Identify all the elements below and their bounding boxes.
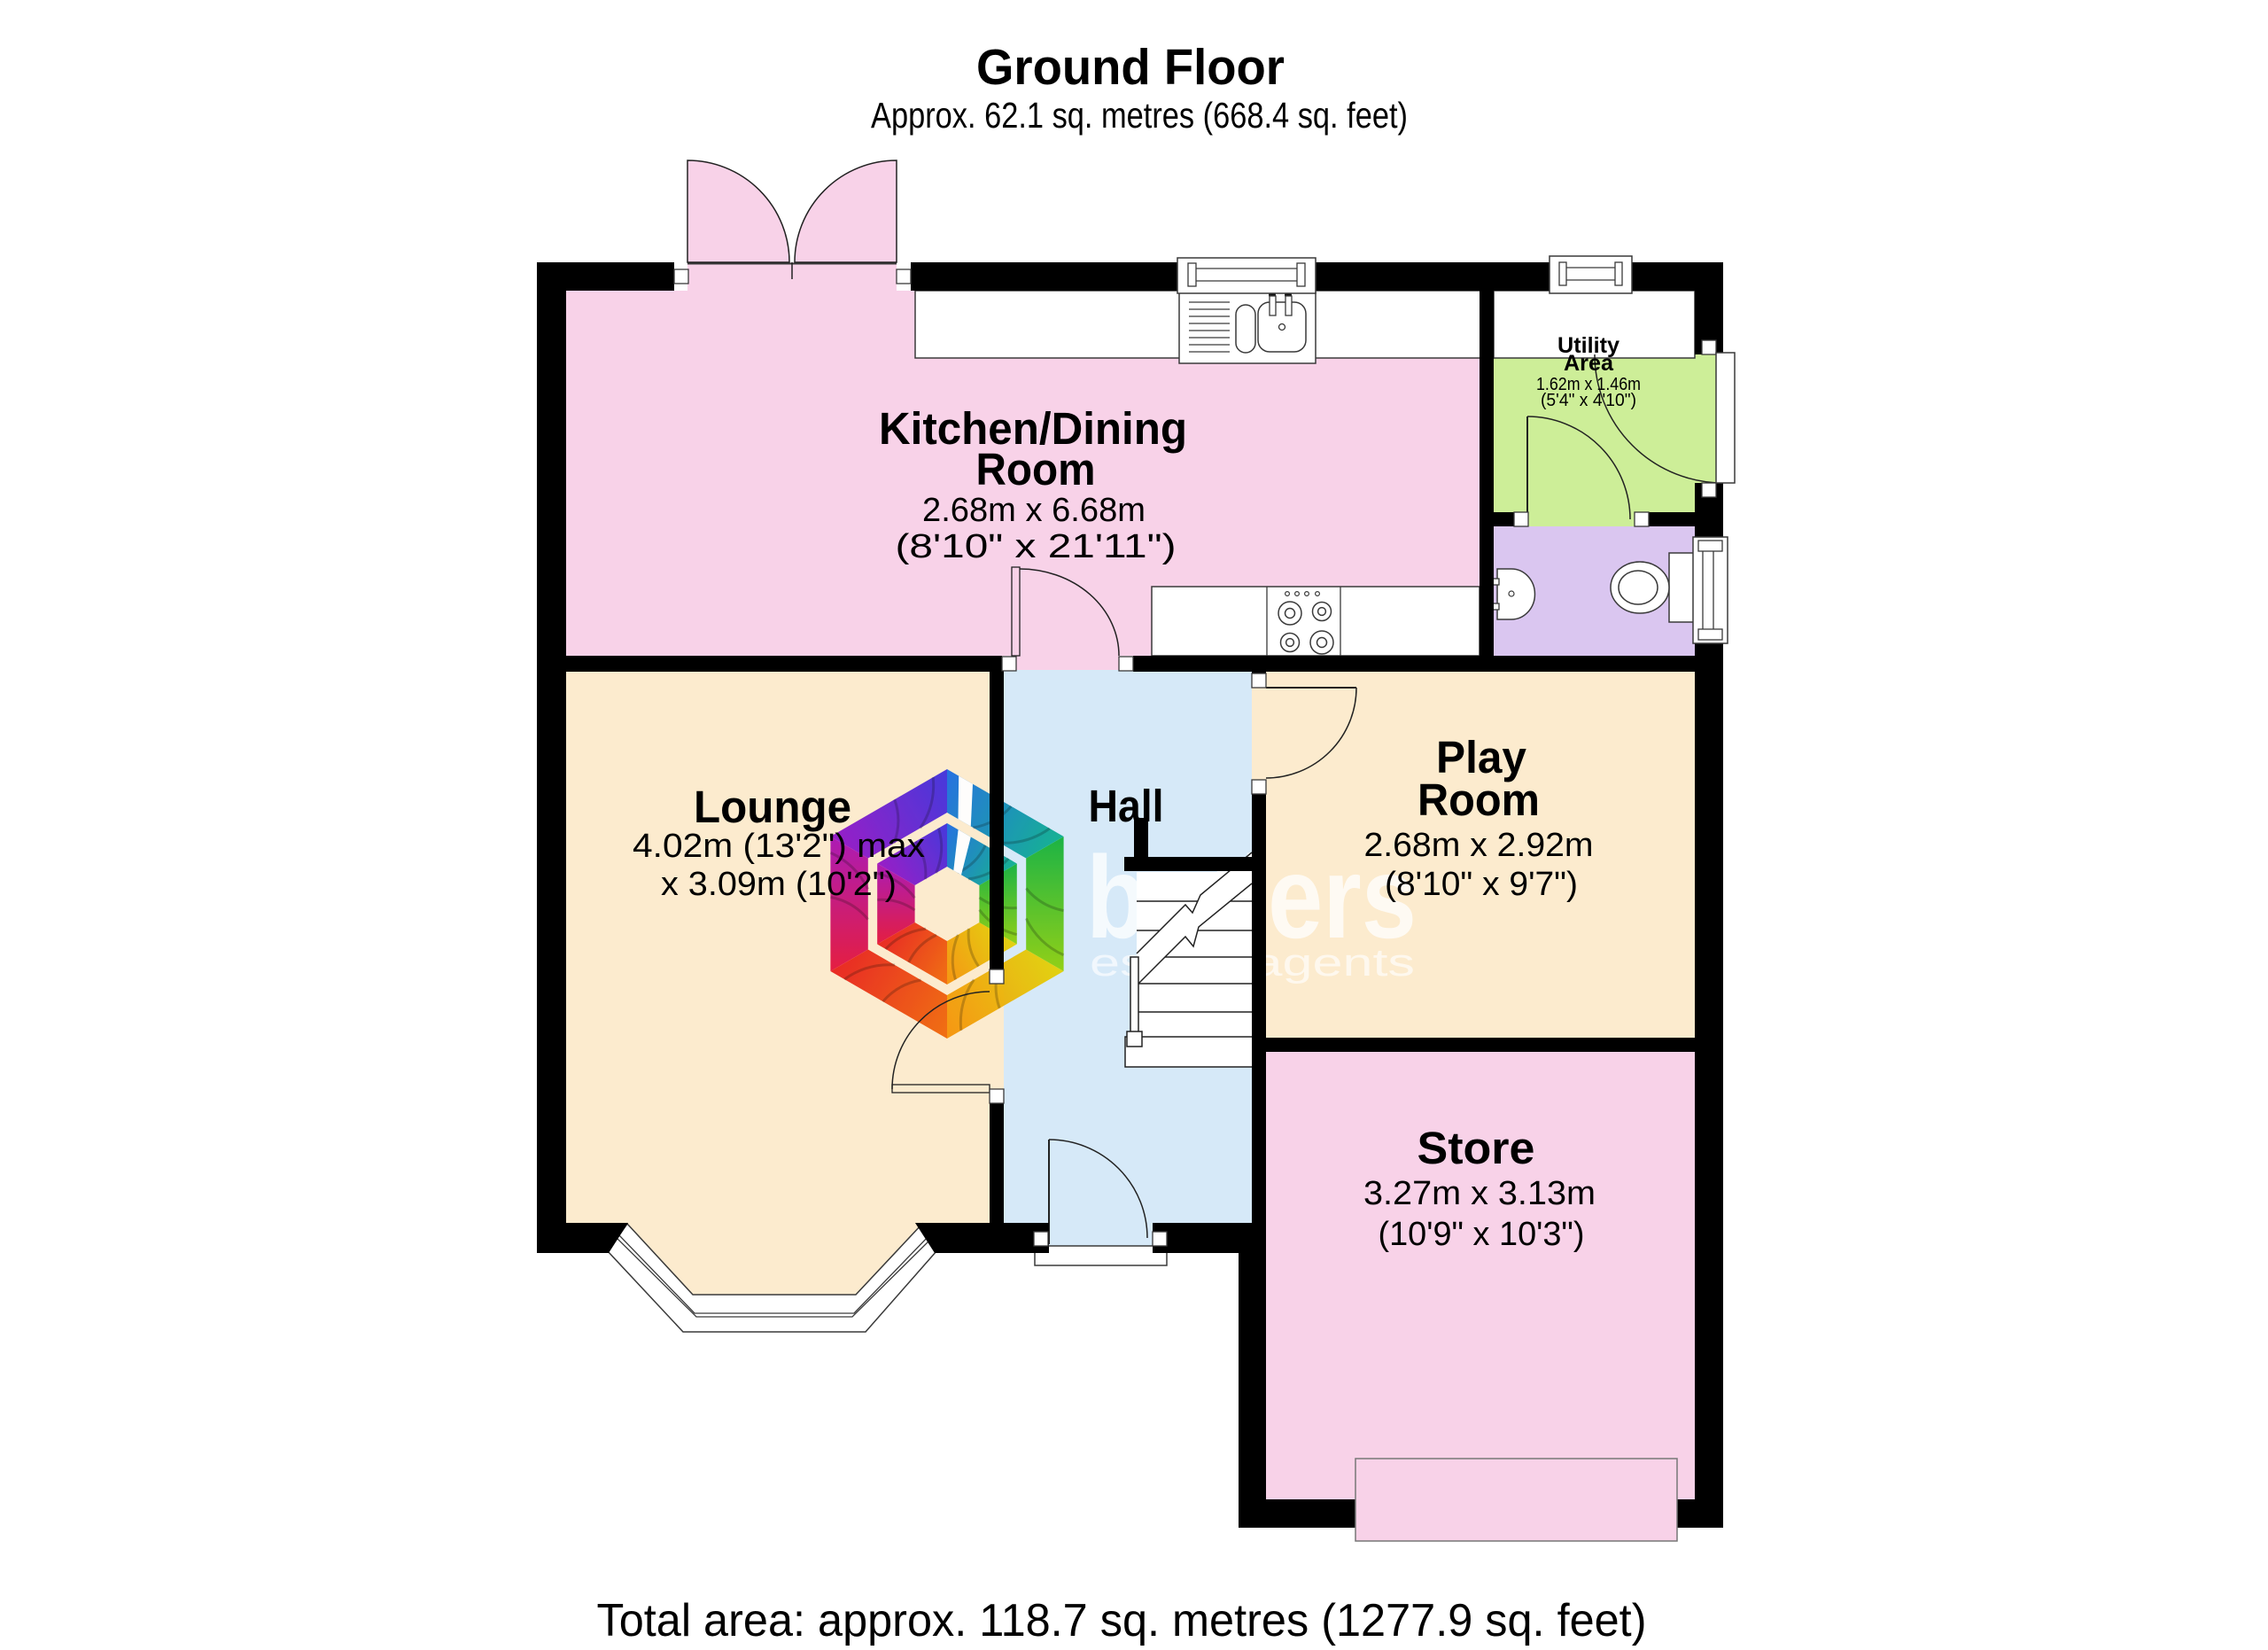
svg-text:Hall: Hall: [1089, 781, 1164, 831]
svg-text:x 3.09m (10'2"): x 3.09m (10'2"): [661, 866, 897, 903]
svg-text:(5'4" x 4'10"): (5'4" x 4'10"): [1541, 391, 1636, 410]
svg-text:Room: Room: [976, 444, 1096, 494]
svg-text:2.68m x 6.68m: 2.68m x 6.68m: [922, 492, 1146, 529]
svg-text:Lounge: Lounge: [694, 782, 851, 832]
svg-text:Total area: approx. 118.7 sq.: Total area: approx. 118.7 sq. metres (12…: [597, 1595, 1647, 1646]
svg-text:(10'9" x 10'3"): (10'9" x 10'3"): [1379, 1216, 1585, 1253]
svg-text:Approx. 62.1 sq. metres (668.4: Approx. 62.1 sq. metres (668.4 sq. feet): [871, 95, 1408, 136]
svg-text:4.02m (13'2") max: 4.02m (13'2") max: [633, 828, 925, 865]
svg-text:3.27m x 3.13m: 3.27m x 3.13m: [1363, 1175, 1596, 1212]
svg-text:Store: Store: [1417, 1123, 1535, 1173]
svg-text:Area: Area: [1564, 351, 1614, 376]
svg-text:Room: Room: [1417, 774, 1540, 825]
svg-text:Ground Floor: Ground Floor: [976, 39, 1285, 96]
svg-text:(8'10" x 9'7"): (8'10" x 9'7"): [1385, 866, 1578, 903]
svg-text:2.68m x 2.92m: 2.68m x 2.92m: [1364, 827, 1594, 864]
svg-text:(8'10" x 21'11"): (8'10" x 21'11"): [896, 528, 1177, 565]
